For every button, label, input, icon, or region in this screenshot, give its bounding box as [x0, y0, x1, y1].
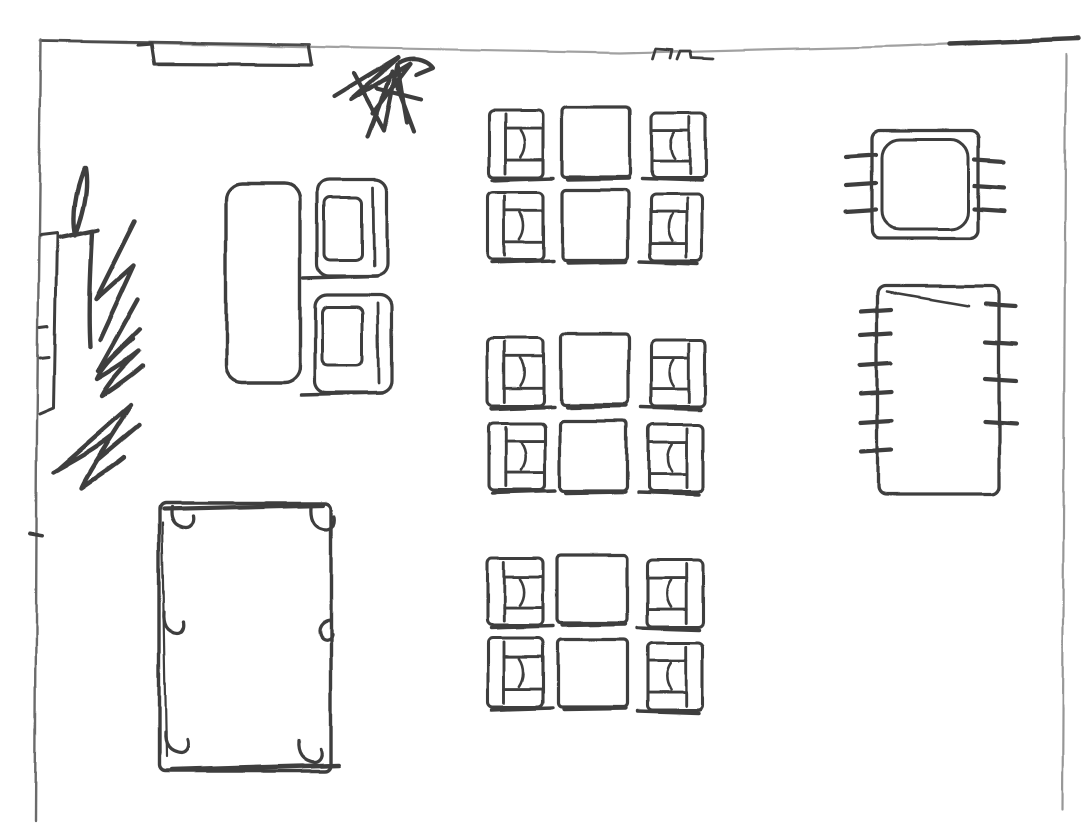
- armchair-top: [303, 180, 387, 278]
- top-wall-ink-right: [950, 39, 1078, 44]
- dining-table-1-2: [562, 190, 628, 262]
- dining-chair-right-1-1: [642, 113, 706, 181]
- dining-table-2-2: [560, 421, 627, 493]
- dining-chair-right-2-2: [638, 425, 703, 495]
- armchair-bottom: [301, 295, 392, 395]
- dining-table-3-2: [558, 640, 627, 709]
- dining-table-1-1: [562, 107, 630, 179]
- left-wall: [35, 40, 41, 822]
- plant-scribble-top: [334, 58, 433, 137]
- ink-layer: [30, 39, 1078, 822]
- dining-table-3-1: [557, 555, 627, 625]
- plant-scribble-left: [54, 168, 143, 488]
- sketch-svg: [0, 0, 1090, 823]
- top-wall-ink-left: [42, 41, 310, 45]
- pool-table: [159, 503, 339, 771]
- dining-chair-left-1-1: [488, 110, 553, 180]
- floor-plan-sketch: [0, 0, 1090, 823]
- sofa: [226, 184, 300, 382]
- left-wall-tick: [30, 534, 42, 536]
- dining-chair-right-3-1: [637, 560, 703, 630]
- dining-chair-left-2-2: [489, 423, 555, 493]
- dining-chair-left-1-2: [488, 192, 553, 263]
- right-wall: [1062, 55, 1066, 810]
- dining-table-2-1: [561, 334, 628, 407]
- side-table-right: [846, 131, 1004, 238]
- dining-chair-left-3-1: [487, 558, 553, 628]
- dining-chair-left-3-2: [488, 638, 553, 710]
- dining-chair-left-2-1: [488, 338, 554, 409]
- wall-shelf: [40, 234, 57, 414]
- dining-chair-right-2-1: [641, 340, 705, 410]
- top-wall: [40, 39, 1063, 53]
- dining-chair-right-1-2: [640, 195, 702, 263]
- long-table-right: [861, 286, 1016, 494]
- dining-chair-right-3-2: [637, 643, 703, 713]
